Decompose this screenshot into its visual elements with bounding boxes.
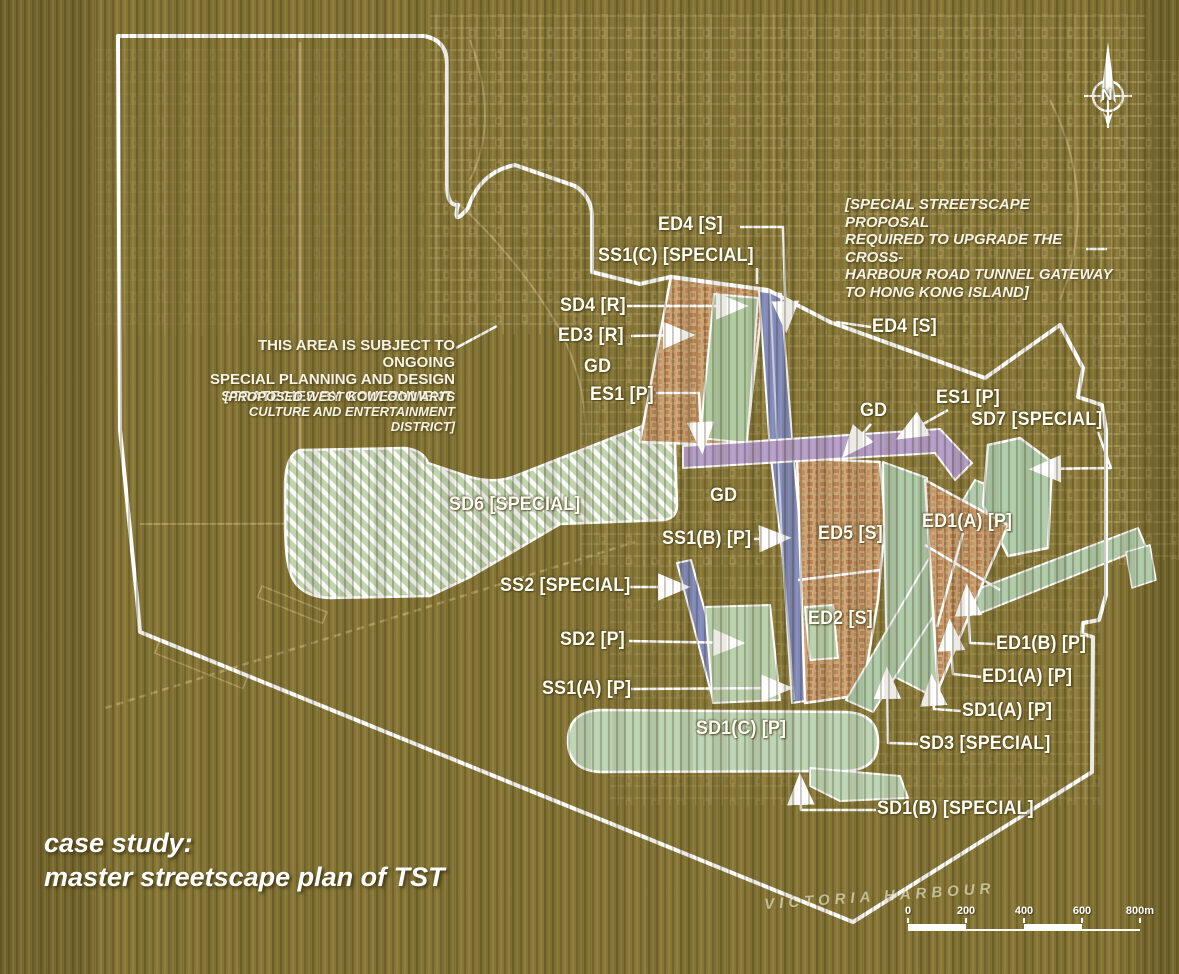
zone-label: SD3 [SPECIAL] <box>919 733 1050 755</box>
leader-line <box>754 538 784 539</box>
caption-line-1: case study: <box>44 826 445 860</box>
zone-label: ED3 [R] <box>558 325 624 347</box>
leader-line <box>631 688 786 689</box>
scale-tick-label: 600 <box>1073 905 1091 917</box>
scale-segment <box>1024 924 1082 931</box>
scale-tick <box>1081 918 1083 923</box>
zone-label: ED1(A) [P] <box>922 511 1012 533</box>
zone-label: SS1(B) [P] <box>662 528 751 550</box>
zone-label: ED1(B) [P] <box>996 633 1086 655</box>
zone-label: SD1(C) [P] <box>696 718 786 740</box>
note-cross-harbour: [SPECIAL STREETSCAPE PROPOSAL REQUIRED T… <box>845 196 1115 301</box>
scale-tick <box>1139 918 1141 923</box>
scale-segment <box>1082 929 1140 931</box>
streetscape-plan-slide: ED4 [S]SS1(C) [SPECIAL]SD4 [R]ED3 [R]GDE… <box>0 0 1179 974</box>
zone-label: SD1(B) [SPECIAL] <box>877 798 1034 820</box>
zone-label: ES1 [P] <box>936 387 1000 409</box>
zone-label: GD <box>860 400 887 422</box>
scale-segment <box>908 924 966 931</box>
caption-line-2: master streetscape plan of TST <box>44 860 445 894</box>
zone-label: SD1(A) [P] <box>962 700 1052 722</box>
note-west-kowloon-sub: [PROPOSED WEST KOWLOON ARTS CULTURE AND … <box>190 389 455 434</box>
scale-tick-label: 800m <box>1126 905 1154 917</box>
zone-label: SS1(C) [SPECIAL] <box>598 245 754 267</box>
scale-bar: 0200400600800m <box>904 905 1154 937</box>
zone-label: ED2 [S] <box>808 608 873 630</box>
scale-tick-label: 0 <box>905 905 911 917</box>
slide-caption: case study: master streetscape plan of T… <box>44 826 445 894</box>
zone-label: SD6 [SPECIAL] <box>449 494 580 516</box>
leader-line <box>631 335 688 336</box>
scale-tick <box>1023 918 1025 923</box>
zone-label: ED4 [S] <box>658 214 723 236</box>
zone-label: GD <box>584 356 611 378</box>
zone-label: ED1(A) [P] <box>982 666 1072 688</box>
scale-tick <box>965 918 967 923</box>
zone-label: ED5 [S] <box>818 523 883 545</box>
zone-label: SS2 [SPECIAL] <box>500 575 630 597</box>
compass-n-label: N <box>1101 87 1113 105</box>
zone-label: GD <box>710 485 737 507</box>
zone-label: SD2 [P] <box>560 629 625 651</box>
scale-tick-label: 200 <box>957 905 975 917</box>
zone-label: ED4 [S] <box>872 316 937 338</box>
scale-tick-label: 400 <box>1015 905 1033 917</box>
zone-label: SD7 [SPECIAL] <box>971 409 1102 431</box>
scale-tick <box>907 918 909 923</box>
zone-label: ES1 [P] <box>590 384 654 406</box>
zone-green-small <box>1126 545 1156 588</box>
scale-segment <box>966 929 1024 931</box>
zone-label: SS1(A) [P] <box>542 678 631 700</box>
zone-label: SD4 [R] <box>560 295 626 317</box>
